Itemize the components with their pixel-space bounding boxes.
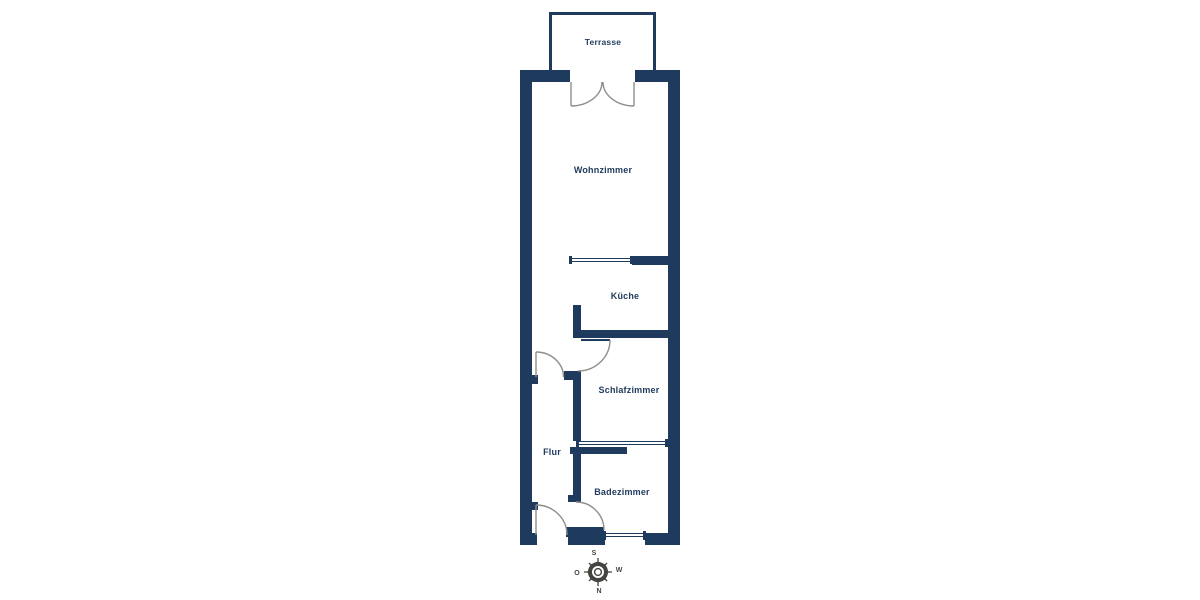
entrance-door-arc: [536, 505, 567, 535]
terrace-door-arc-left: [571, 82, 602, 106]
room-label-badezimmer: Badezimmer: [594, 487, 650, 497]
compass-label-south: S: [592, 550, 597, 557]
compass-label-north: N: [596, 588, 601, 595]
hall-door-arc: [536, 352, 564, 377]
room-label-flur: Flur: [543, 447, 561, 457]
terrace-door-arc-right: [603, 82, 634, 106]
compass-rose-icon: [584, 558, 612, 586]
room-label-terrasse: Terrasse: [585, 37, 621, 47]
room-label-kueche: Küche: [611, 291, 640, 301]
room-label-wohnzimmer: Wohnzimmer: [574, 165, 632, 175]
bedroom-door-arc: [578, 340, 610, 371]
bathroom-door-arc: [576, 502, 604, 530]
door-swing-overlay: S O W N: [0, 0, 1200, 600]
floorplan: S O W N Terrasse Wohnzimmer Küche Schlaf…: [0, 0, 1200, 600]
compass-label-west: W: [616, 567, 623, 574]
compass-label-east: O: [574, 570, 580, 577]
room-label-schlafzimmer: Schlafzimmer: [599, 385, 660, 395]
